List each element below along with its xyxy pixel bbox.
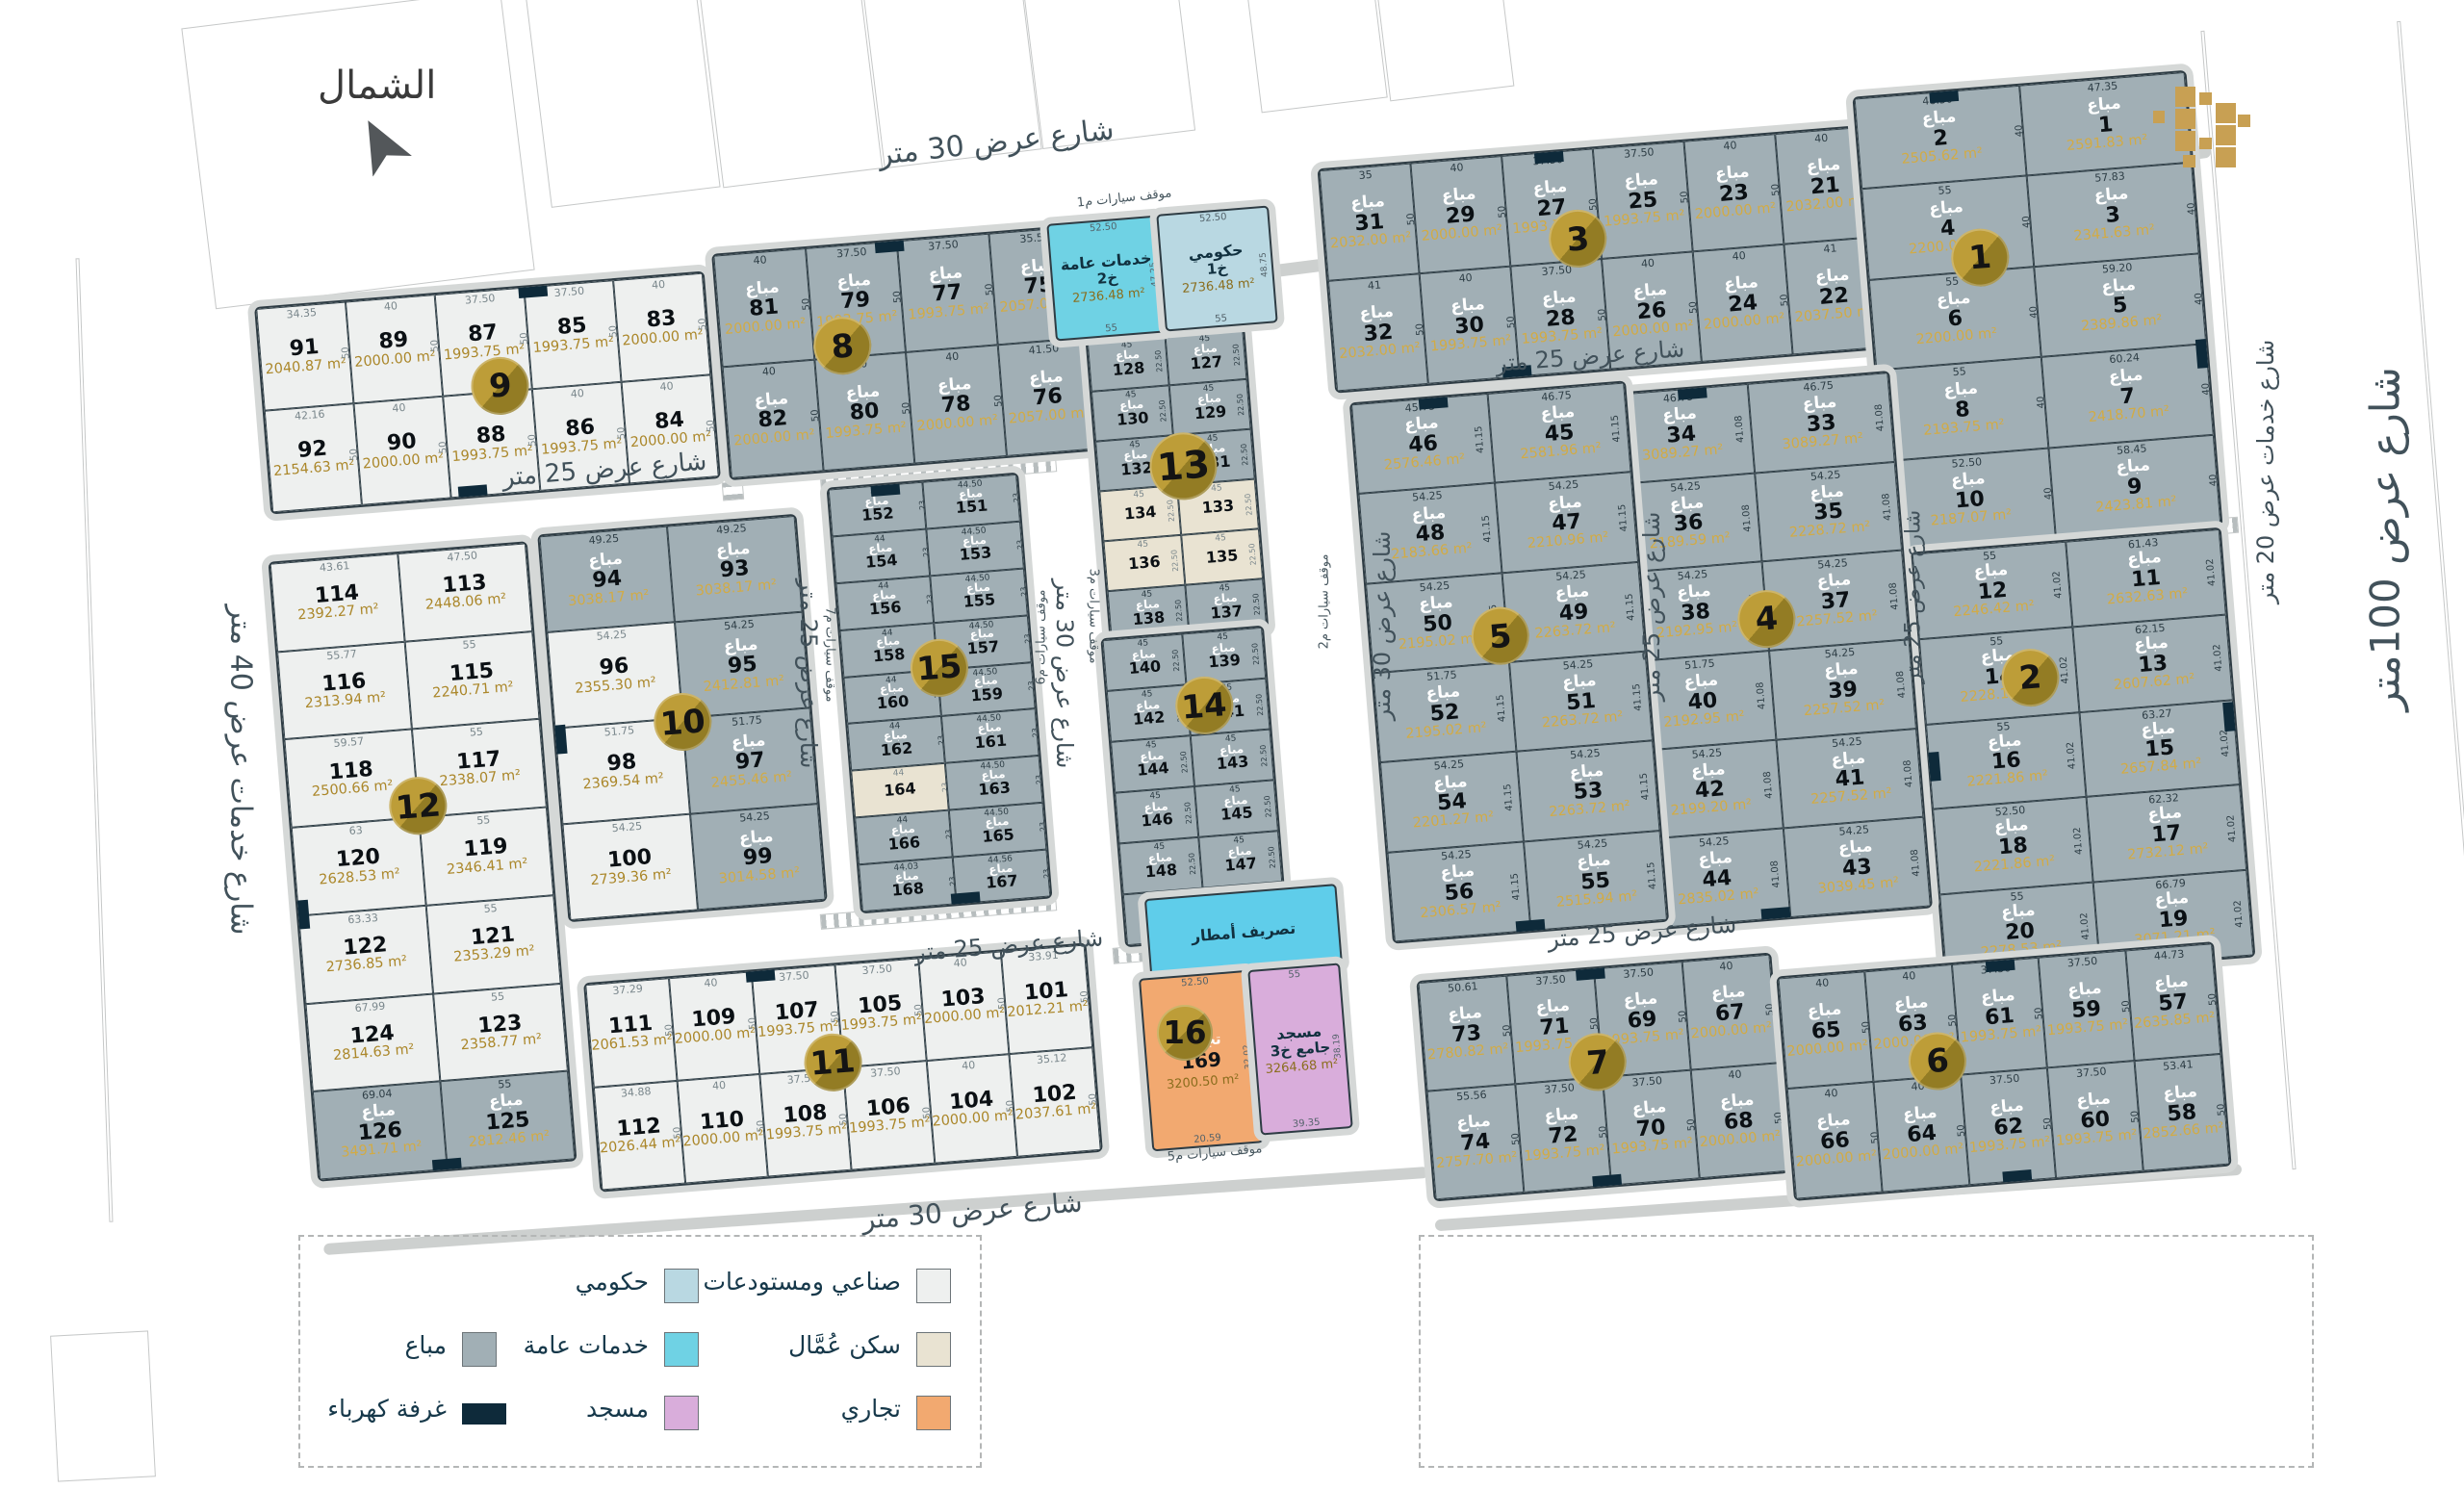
- plot-82[interactable]: 40مباع822000.00 m²50: [723, 360, 823, 478]
- plot-number: 8: [1954, 398, 1970, 422]
- plot-number: 135: [1205, 548, 1239, 566]
- legend-label-industrial: صناعي ومستودعات: [703, 1268, 901, 1296]
- electricity-room: [1516, 919, 1546, 934]
- plot-side-dimension: 50: [1080, 989, 1091, 1003]
- plot-94[interactable]: 49.25مباع943038.17 m²: [539, 526, 675, 632]
- electricity-room: [1576, 965, 1605, 980]
- plot-side-dimension: 41.02: [2212, 644, 2224, 672]
- plot-number: 167: [986, 874, 1019, 892]
- plot-side-dimension: 23: [1012, 493, 1020, 503]
- plot-number: 159: [970, 686, 1004, 705]
- plot-number: 79: [840, 289, 871, 313]
- plot-top-dimension: 40: [1682, 957, 1769, 976]
- plot-68[interactable]: 40مباع682000.00 m²50: [1690, 1063, 1786, 1178]
- parcel-commercial[interactable]: 52.5032.0220.59تجاري1693200.50 m²: [1139, 970, 1264, 1152]
- plot-8[interactable]: 55مباع82193.75 m²40: [1876, 357, 2048, 461]
- plot-side-dimension: 41.15: [1625, 593, 1637, 621]
- plot-area: 2037.50 m²: [1794, 304, 1877, 326]
- plot-number: 145: [1220, 806, 1254, 824]
- plot-top-dimension: 40: [1776, 129, 1866, 148]
- plot-number: 129: [1193, 404, 1227, 423]
- parcel-side-dimension: 38.19: [1332, 1034, 1344, 1059]
- parcel-area: 3264.68 m²: [1265, 1057, 1339, 1077]
- plot-number: 7: [2119, 385, 2136, 408]
- plot-area: 2780.82 m²: [1427, 1042, 1510, 1065]
- plot-number: 148: [1144, 862, 1178, 881]
- plot-59[interactable]: 37.50مباع591993.75 m²50: [2039, 950, 2134, 1067]
- plot-area: 2000.00 m²: [1786, 1039, 1869, 1061]
- plot-area: 2192.95 m²: [1663, 709, 1746, 732]
- plot-side-dimension: 41.15: [1510, 873, 1523, 901]
- plot-113[interactable]: 47.501132448.06 m²: [398, 543, 532, 641]
- plot-side-dimension: 22.50: [1166, 500, 1176, 523]
- plot-116[interactable]: 55.771162313.94 m²: [277, 641, 412, 739]
- plot-side-dimension: 40: [2208, 474, 2220, 487]
- plot-148[interactable]: 45مباع14822.50: [1119, 837, 1203, 894]
- plot-139[interactable]: 45مباع13922.50: [1182, 628, 1266, 684]
- plot-number: 128: [1112, 360, 1145, 378]
- plot-168[interactable]: 44.03مباع16823: [859, 858, 957, 912]
- plot-146[interactable]: 45مباع14622.50: [1115, 786, 1198, 843]
- plot-110[interactable]: 401102000.00 m²50: [677, 1074, 768, 1184]
- plot-74[interactable]: 55.56مباع742757.70 m²50: [1427, 1084, 1524, 1199]
- plot-side-dimension: 50: [698, 318, 709, 331]
- plot-number: 6: [1947, 308, 1963, 331]
- plot-area: 2183.66 m²: [1391, 542, 1474, 564]
- plot-area: 1993.75 m²: [840, 1013, 923, 1035]
- legend-label-electric: غرفة كهرباء: [327, 1395, 447, 1423]
- plot-side-dimension: 22.50: [1255, 693, 1266, 716]
- plot-top-dimension: 40: [670, 973, 752, 992]
- plot-side-dimension: 41.02: [2226, 814, 2239, 842]
- plot-number: 140: [1128, 659, 1162, 678]
- plot-number: 133: [1201, 498, 1235, 516]
- plot-93[interactable]: 49.25مباع933038.17 m²: [667, 516, 803, 622]
- plot-114[interactable]: 43.611142392.27 m²: [270, 553, 405, 652]
- plot-number: 98: [606, 751, 637, 775]
- plot-top-dimension: 40: [1788, 1084, 1874, 1103]
- plot-123[interactable]: 551232358.77 m²: [433, 983, 568, 1081]
- plot-area: 2037.61 m²: [1014, 1102, 1097, 1124]
- plot-area: 2000.00 m²: [724, 317, 807, 339]
- plot-54[interactable]: 54.25مباع542201.27 m²41.15: [1380, 752, 1524, 852]
- parcel-mosque[interactable]: 5538.1939.35مسجدجامع خ33264.68 m²: [1247, 963, 1352, 1135]
- plot-area: 1993.75 m²: [765, 1122, 848, 1144]
- plot-45[interactable]: 46.75مباع452581.96 m²41.15: [1488, 383, 1631, 483]
- plot-162[interactable]: 44مباع16223: [847, 716, 945, 771]
- electricity-room: [1534, 149, 1564, 164]
- plot-number: 99: [742, 845, 773, 869]
- plot-top-dimension: 47.50: [398, 545, 526, 567]
- plot-109[interactable]: 401092000.00 m²50: [669, 971, 760, 1081]
- plot-side-dimension: 22.50: [1179, 750, 1190, 773]
- plot-area: 2732.12 m²: [2127, 842, 2210, 864]
- plot-area: 2739.36 m²: [590, 867, 673, 889]
- plot-43[interactable]: 54.25مباع433039.45 m²41.08: [1784, 817, 1931, 917]
- plot-135[interactable]: 4513522.50: [1181, 528, 1263, 584]
- plot-area: 2389.86 m²: [2081, 314, 2164, 336]
- plot-53[interactable]: 54.25مباع532263.72 m²41.15: [1516, 741, 1659, 841]
- plot-129[interactable]: 45مباع12922.50: [1169, 379, 1251, 435]
- plot-9[interactable]: 58.45مباع92423.81 m²40: [2048, 434, 2220, 538]
- plot-number: 153: [959, 545, 992, 563]
- plot-area: 2448.06 m²: [424, 593, 507, 615]
- plot-161[interactable]: 44.50مباع16123: [941, 708, 1039, 763]
- legend-swatch-government: [664, 1269, 699, 1303]
- plot-127[interactable]: 45مباع12722.50: [1165, 329, 1246, 385]
- boundary-dashed-rect: [1419, 1235, 2314, 1468]
- plot-side-dimension: 22.50: [1240, 443, 1250, 466]
- plot-top-dimension: 40: [1780, 973, 1865, 992]
- plot-area: 2412.81 m²: [703, 674, 785, 696]
- plot-area: 2346.41 m²: [446, 857, 528, 879]
- legend-label-services: خدمات عامة: [524, 1331, 649, 1359]
- street-label: شارع عرض 30 متر: [1051, 579, 1078, 769]
- plot-area: 2263.72 m²: [1549, 800, 1631, 822]
- background-parcel-outline: [524, 0, 720, 208]
- plot-64[interactable]: 40مباع642000.00 m²50: [1874, 1075, 1969, 1193]
- parking-label: موقف سيارات م6: [1035, 590, 1049, 685]
- plot-side-dimension: 23: [1035, 774, 1043, 784]
- plot-155[interactable]: 44.50مباع15523: [930, 568, 1028, 623]
- plot-area: 3039.45 m²: [1817, 876, 1900, 898]
- plot-55[interactable]: 54.25مباع552515.94 m²41.15: [1524, 831, 1667, 931]
- plot-104[interactable]: 401042000.00 m²50: [926, 1054, 1017, 1164]
- plot-5[interactable]: 59.20مباع52389.86 m²40: [2034, 253, 2206, 357]
- plot-25[interactable]: 37.50مباع251993.75 m²50: [1593, 141, 1693, 259]
- plot-125[interactable]: 55مباع1252812.46 m²: [440, 1071, 575, 1169]
- parcel-code: خ1: [1206, 260, 1228, 277]
- plot-121[interactable]: 551212353.29 m²: [426, 895, 561, 993]
- plot-side-dimension: 41.15: [1474, 425, 1486, 453]
- plot-18[interactable]: 52.50مباع182221.86 m²41.02: [1933, 797, 2093, 894]
- plot-number: 168: [891, 881, 925, 899]
- plot-area: 1993.75 m²: [1611, 1137, 1694, 1159]
- legend-label-mosque: مسجد: [586, 1395, 649, 1423]
- plot-number: 160: [876, 693, 910, 711]
- plot-area: 2000.00 m²: [1882, 1142, 1964, 1165]
- plot-side-dimension: 23: [1031, 728, 1039, 738]
- electricity-room: [2222, 703, 2237, 732]
- plot-166[interactable]: 44مباع16623: [855, 810, 953, 865]
- plot-area: 2246.42 m²: [1953, 599, 2036, 621]
- parcel-services[interactable]: 52.5047.2555خدمات عامةخ22736.48 m²: [1046, 216, 1168, 342]
- plot-number: 152: [861, 506, 895, 525]
- plot-number: 89: [378, 329, 409, 353]
- electricity-room: [432, 1158, 462, 1172]
- plot-area: 1993.75 m²: [532, 335, 615, 357]
- plot-35[interactable]: 54.25مباع352228.72 m²41.08: [1755, 462, 1902, 562]
- plot-top-dimension: 34.35: [257, 304, 346, 323]
- plot-number: 156: [868, 600, 902, 618]
- plot-91[interactable]: 34.35912040.87 m²50: [256, 302, 353, 411]
- plot-area: 2505.62 m²: [1901, 146, 1984, 168]
- plot-area: 2576.46 m²: [1383, 452, 1466, 475]
- plot-area: 2257.52 m²: [1803, 698, 1886, 720]
- plot-102[interactable]: 35.121022037.61 m²50: [1010, 1047, 1101, 1157]
- plot-area: 2423.81 m²: [2095, 495, 2178, 517]
- parcel-government[interactable]: 52.5048.7555حكوميخ12736.48 m²: [1156, 206, 1277, 332]
- plot-41[interactable]: 54.25مباع412257.52 m²41.08: [1776, 729, 1923, 829]
- plot-number: 136: [1128, 553, 1162, 572]
- plot-31[interactable]: 35مباع312032.00 m²50: [1320, 164, 1420, 281]
- plot-area: 2000.00 m²: [1704, 312, 1786, 334]
- plot-47[interactable]: 54.25مباع472210.96 m²41.15: [1495, 473, 1638, 573]
- plot-side-dimension: 22.50: [1250, 642, 1261, 665]
- plot-140[interactable]: 45مباع14022.50: [1103, 634, 1187, 691]
- plot-70[interactable]: 37.50مباع701993.75 m²50: [1603, 1070, 1699, 1186]
- plot-area: 2012.21 m²: [1007, 999, 1090, 1021]
- plot-side-dimension: 41.15: [1481, 515, 1494, 543]
- plot-100[interactable]: 54.251002739.36 m²: [562, 814, 698, 920]
- plot-top-dimension: 40: [678, 1076, 759, 1095]
- plot-130[interactable]: 45مباع13022.50: [1091, 385, 1173, 441]
- plot-6[interactable]: 55مباع62200.00 m²40: [1869, 267, 2041, 371]
- plot-area: 2000.00 m²: [916, 413, 999, 435]
- plot-number: 5: [2112, 295, 2128, 318]
- plot-side-dimension: 41.15: [1617, 503, 1630, 531]
- plot-area: 2392.27 m²: [297, 603, 380, 625]
- plot-number: 166: [887, 834, 921, 853]
- street-label: شارع عرض 30 متر: [1369, 531, 1396, 721]
- plot-area: 2000.00 m²: [362, 450, 445, 473]
- plot-side-dimension: 41.15: [1610, 414, 1623, 442]
- plot-145[interactable]: 45مباع14522.50: [1194, 780, 1278, 836]
- plot-89[interactable]: 40892000.00 m²50: [346, 295, 443, 403]
- plot-area: 2193.75 m²: [1923, 418, 2006, 440]
- plot-65[interactable]: 40مباع652000.00 m²50: [1779, 971, 1874, 1089]
- plot-147[interactable]: 45مباع14722.50: [1198, 831, 1282, 887]
- electricity-room: [1677, 385, 1707, 399]
- street-label: شارع عرض 30 متر: [860, 1186, 1083, 1235]
- plot-area: 2358.77 m²: [460, 1033, 543, 1055]
- street-label: شارع عرض 100متر: [2362, 367, 2409, 711]
- plot-top-dimension: 37.50: [2040, 953, 2125, 972]
- plot-area: 1993.75 m²: [908, 301, 990, 323]
- plot-side-dimension: 22.50: [1259, 744, 1270, 767]
- plot-area: 2263.72 m²: [1534, 621, 1617, 643]
- plot-101[interactable]: 33.911012012.21 m²50: [1001, 944, 1092, 1054]
- plot-area: 2812.46 m²: [468, 1129, 551, 1151]
- parking-label: موقف سيارات م2: [1318, 554, 1332, 650]
- plot-area: 2455.46 m²: [710, 770, 793, 792]
- plot-156[interactable]: 44مباع15623: [836, 576, 935, 630]
- electricity-room: [2002, 1169, 2032, 1184]
- plot-area: 1993.75 m²: [2046, 1018, 2129, 1040]
- plot-area: 2228.72 m²: [1789, 521, 1872, 543]
- plot-144[interactable]: 45مباع14422.50: [1111, 735, 1194, 792]
- plot-153[interactable]: 44.50مباع15323: [926, 522, 1024, 577]
- plot-number: 164: [884, 782, 917, 800]
- plot-side-dimension: 41.02: [2079, 911, 2092, 939]
- plot-area: 2000.00 m²: [1795, 1149, 1878, 1171]
- plot-side-dimension: 41.02: [2059, 656, 2071, 684]
- plot-112[interactable]: 34.881122026.44 m²50: [594, 1081, 685, 1191]
- plot-area: 2852.66 m²: [2143, 1121, 2225, 1143]
- plot-top-dimension: 40: [1412, 158, 1502, 177]
- plot-side-dimension: 41.08: [1910, 848, 1922, 876]
- plot-23[interactable]: 40مباع232000.00 m²50: [1683, 134, 1784, 251]
- plot-area: 2263.72 m²: [1541, 710, 1624, 732]
- plot-67[interactable]: 40مباع672000.00 m²50: [1681, 955, 1778, 1070]
- plot-number: 127: [1190, 354, 1223, 372]
- plot-side-dimension: 50: [1765, 1002, 1777, 1015]
- plot-7[interactable]: 60.24مباع72418.70 m²40: [2041, 344, 2214, 448]
- plot-24[interactable]: 40مباع242000.00 m²50: [1693, 244, 1793, 362]
- plot-side-dimension: 22.50: [1174, 599, 1185, 622]
- plot-number: 154: [865, 552, 899, 571]
- plot-143[interactable]: 45مباع14322.50: [1191, 730, 1274, 786]
- plot-area: 2835.02 m²: [1678, 887, 1760, 910]
- plot-111[interactable]: 37.291112061.53 m²50: [585, 978, 677, 1088]
- plot-status-sold-label: مباع: [2087, 95, 2122, 116]
- plot-area: 1993.75 m²: [825, 421, 908, 443]
- plot-number: 158: [872, 647, 906, 665]
- plot-area: 2657.84 m²: [2120, 757, 2203, 780]
- plot-number: 85: [556, 315, 587, 339]
- plot-number: 88: [475, 424, 506, 448]
- parking-label: موقف سيارات م1: [1076, 186, 1172, 210]
- plot-78[interactable]: 40مباع782000.00 m²50: [906, 345, 1006, 463]
- plot-side-dimension: 23: [1019, 586, 1028, 597]
- plot-number: 97: [734, 750, 765, 774]
- plot-13[interactable]: 62.15مباع132607.62 m²41.02: [2072, 614, 2233, 711]
- plot-top-dimension: 37.29: [586, 980, 668, 999]
- parcel-area: 2736.48 m²: [1182, 276, 1256, 296]
- plot-number: 142: [1132, 710, 1166, 729]
- plot-area: 2581.96 m²: [1520, 442, 1603, 464]
- plot-number: 77: [932, 282, 962, 306]
- plot-15[interactable]: 63.27مباع152657.84 m²41.02: [2079, 700, 2240, 797]
- legend-label-commercial: تجاري: [841, 1395, 901, 1423]
- plot-area: 2032.00 m²: [1339, 341, 1422, 363]
- block-12: 43.611142392.27 m²47.501132448.06 m²55.7…: [269, 541, 577, 1182]
- plot-side-dimension: 41.02: [2220, 729, 2232, 757]
- plot-56[interactable]: 54.25مباع562306.57 m²41.15: [1387, 841, 1530, 941]
- electricity-room: [1761, 907, 1791, 921]
- plot-76[interactable]: 41.50مباع762057.00 m²50: [997, 338, 1097, 456]
- plot-77[interactable]: 37.50مباع771993.75 m²50: [897, 234, 997, 352]
- plot-side-dimension: 22.50: [1183, 801, 1193, 824]
- plot-164[interactable]: 4416423: [851, 763, 949, 818]
- plot-126[interactable]: 69.04مباع1263491.71 m²: [313, 1082, 448, 1180]
- electricity-room: [552, 725, 567, 755]
- parcel-side-dimension: 47.25: [1149, 262, 1161, 287]
- plot-39[interactable]: 54.25مباع392257.52 m²41.08: [1769, 639, 1916, 739]
- plot-115[interactable]: 551152240.71 m²: [405, 631, 540, 730]
- plot-side-dimension: 50: [706, 420, 717, 433]
- plot-area: 2201.27 m²: [1412, 810, 1495, 833]
- plot-top-dimension: 49.25: [668, 518, 795, 540]
- electricity-room: [1985, 958, 2015, 972]
- plot-90[interactable]: 40902000.00 m²50: [353, 397, 450, 505]
- plot-top-dimension: 37.50: [436, 290, 525, 309]
- plot-165[interactable]: 44.50مباع16523: [949, 803, 1047, 858]
- plot-128[interactable]: 45مباع12822.50: [1088, 336, 1169, 392]
- plot-side-dimension: 23: [1023, 633, 1032, 644]
- plot-number: 137: [1210, 603, 1244, 622]
- plot-side-dimension: 41.02: [2233, 899, 2246, 927]
- plot-side-dimension: 41.08: [1741, 504, 1754, 532]
- plot-12[interactable]: 55مباع122246.42 m²41.02: [1912, 542, 2073, 639]
- plot-number: 96: [599, 655, 629, 680]
- plot-16[interactable]: 55مباع162221.86 m²41.02: [1926, 712, 2087, 809]
- plot-17[interactable]: 62.32مباع172732.12 m²41.02: [2087, 784, 2247, 882]
- plot-51[interactable]: 54.25مباع512263.72 m²41.15: [1509, 652, 1653, 752]
- plot-103[interactable]: 401032000.00 m²50: [918, 951, 1010, 1061]
- plot-number: 92: [297, 438, 328, 462]
- plot-area: 2221.86 m²: [1973, 855, 2056, 877]
- plot-area: 1993.75 m²: [1960, 1025, 2042, 1047]
- plot-number: 83: [646, 308, 677, 332]
- plot-29[interactable]: 40مباع292000.00 m²50: [1410, 156, 1510, 273]
- electricity-room: [1926, 752, 1940, 782]
- block-6: 40مباع652000.00 m²5040مباع632000.00 m²50…: [1776, 941, 2231, 1201]
- plot-number: 132: [1120, 460, 1154, 478]
- plot-151[interactable]: 44.50مباع15123: [922, 475, 1020, 529]
- background-parcel-outline: [1372, 0, 1515, 101]
- plot-top-dimension: 37.50: [836, 960, 918, 979]
- plot-side-dimension: 41.08: [1903, 759, 1915, 787]
- plot-area: 2341.63 m²: [2073, 223, 2156, 245]
- plot-number: 87: [467, 321, 498, 346]
- plot-73[interactable]: 50.61مباع732780.82 m²50: [1419, 976, 1515, 1091]
- plot-11[interactable]: 61.43مباع112632.63 m²41.02: [2066, 529, 2226, 627]
- background-parcel-outline: [76, 258, 114, 1222]
- plot-83[interactable]: 40832000.00 m²50: [613, 273, 710, 382]
- plot-154[interactable]: 44مباع15423: [833, 528, 931, 583]
- plot-side-dimension: 22.50: [1171, 649, 1182, 672]
- plot-top-dimension: 40: [346, 296, 435, 316]
- plot-area: 2000.00 m²: [932, 1109, 1014, 1131]
- plot-81[interactable]: 40مباع812000.00 m²50: [713, 248, 813, 367]
- plot-area: 2313.94 m²: [304, 691, 387, 713]
- plot-area: 3491.71 m²: [341, 1140, 423, 1162]
- background-parcel-outline: [697, 0, 883, 188]
- plot-side-dimension: 23: [1041, 868, 1050, 879]
- plot-122[interactable]: 63.331222736.85 m²: [298, 906, 433, 1004]
- plot-163[interactable]: 44.50مباع16323: [945, 756, 1043, 810]
- plot-66[interactable]: 40مباع662000.00 m²50: [1787, 1082, 1883, 1199]
- plot-top-dimension: 43.61: [271, 555, 398, 578]
- plot-side-dimension: 50: [1774, 1111, 1785, 1124]
- plot-side-dimension: 41.02: [2072, 827, 2085, 855]
- block-circle-16: 16: [1157, 1005, 1213, 1061]
- plot-area: 2757.70 m²: [1436, 1150, 1519, 1172]
- plot-136[interactable]: 4513622.50: [1103, 535, 1185, 591]
- legend-swatch-industrial: [916, 1269, 951, 1303]
- plot-area: 2210.96 m²: [1527, 531, 1609, 553]
- plot-99[interactable]: 54.25مباع993014.58 m²: [690, 804, 826, 910]
- plot-area: 3089.27 m²: [1642, 443, 1725, 465]
- parking-label: موقف سيارات م7: [823, 607, 837, 703]
- plot-area: 2355.30 m²: [575, 676, 657, 698]
- plot-top-dimension: 40: [928, 1056, 1010, 1075]
- plot-area: 2338.07 m²: [439, 768, 522, 790]
- parcel-top-dimension: 55: [1249, 966, 1339, 984]
- plot-60[interactable]: 37.50مباع601993.75 m²50: [2047, 1061, 2143, 1178]
- plot-58[interactable]: 53.41مباع582852.66 m²50: [2134, 1054, 2229, 1171]
- plot-33[interactable]: 46.75مباع333089.27 m²41.08: [1748, 372, 1895, 473]
- plot-32[interactable]: 41مباع322032.00 m²50: [1328, 273, 1428, 391]
- plot-area: 2154.63 m²: [273, 458, 356, 480]
- plot-124[interactable]: 67.991242814.63 m²: [305, 993, 440, 1091]
- electricity-room: [295, 900, 310, 930]
- plot-side-dimension: 41.02: [2066, 741, 2078, 769]
- plot-62[interactable]: 37.50مباع621993.75 m²50: [1961, 1067, 2056, 1185]
- plot-57[interactable]: 44.73مباع572635.85 m²50: [2125, 943, 2220, 1061]
- plot-92[interactable]: 42.16922154.63 m²50: [265, 403, 362, 512]
